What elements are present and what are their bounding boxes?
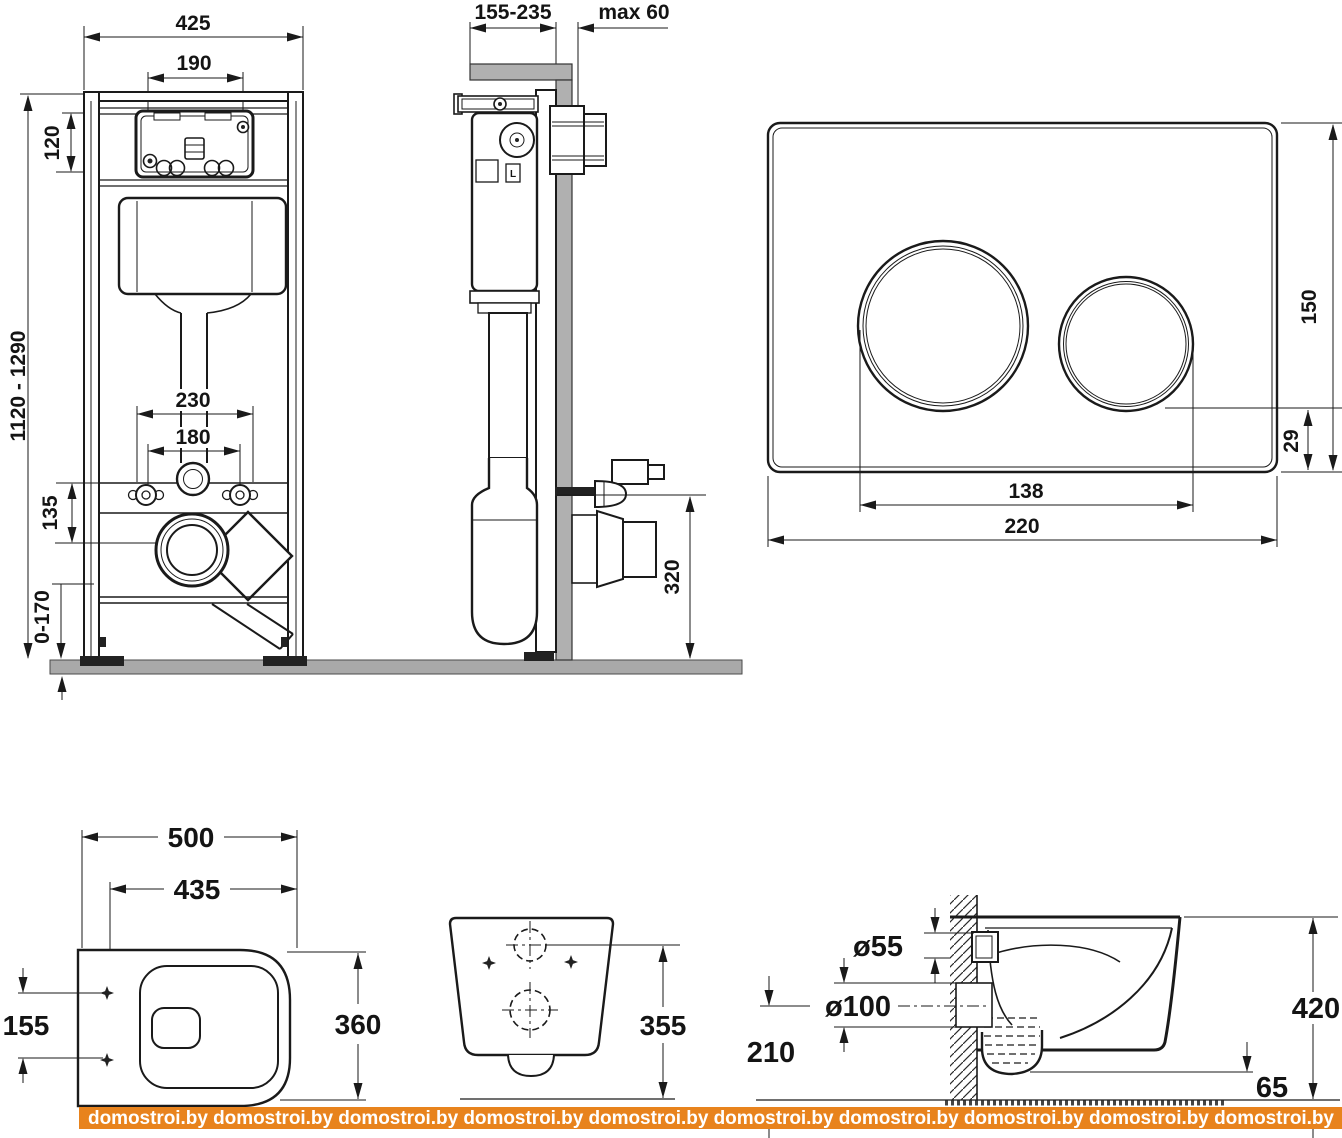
flush-plate-view: 150 29 138 220 [768, 123, 1342, 547]
bowl-outline-top [78, 950, 290, 1106]
frame-foot-left [80, 656, 124, 666]
dim-button-offset: 29 [1280, 429, 1303, 452]
dim-plate-cutout-width: 190 [176, 52, 211, 75]
dim-outlet-offset: 135 [39, 495, 62, 530]
flush-pipe-side [489, 313, 527, 458]
dim-plate-width: 220 [1004, 515, 1039, 538]
dim-mount-width: 435 [174, 874, 221, 905]
wall-top-shelf [470, 64, 572, 80]
dim-depth-range: 155-235 [474, 1, 551, 24]
mount-bolt-left [129, 485, 164, 505]
bowl-rear-view: 355 [450, 918, 686, 1099]
dim-frame-width: 425 [175, 12, 210, 35]
wall-bracket [550, 106, 584, 174]
bowl-right-edge [1154, 917, 1180, 1050]
frame-foot-side [524, 652, 554, 661]
frame-side-view: 155-235 max 60 L 320 [454, 1, 706, 661]
drain-trap [472, 458, 537, 644]
dim-bottom-gap: 65 [1256, 1072, 1288, 1104]
bowl-outline-rear [450, 918, 613, 1055]
outlet-duct [956, 983, 992, 1027]
dim-wall-max: max 60 [598, 1, 669, 24]
frame-foot-right [263, 656, 307, 666]
dim-rear-height: 355 [640, 1010, 687, 1041]
bowl-top-view: 500 435 155 360 [3, 822, 382, 1106]
dim-outlet-height: 320 [661, 559, 684, 594]
water-inlet-port [177, 463, 209, 495]
technical-drawing-canvas: 425 190 1120 - 1290 120 230 180 [0, 0, 1342, 1138]
dim-bowl-depth: 360 [335, 1009, 382, 1040]
dim-button-centers: 138 [1008, 480, 1043, 503]
inlet-connector [612, 460, 648, 484]
dim-total-height: 420 [1292, 993, 1340, 1025]
mount-bolt-right [223, 485, 258, 505]
dim-outlet-axis-height: 210 [747, 1037, 795, 1069]
dim-mount-span: 155 [3, 1010, 50, 1041]
dim-bowl-width: 500 [168, 822, 215, 853]
watermark-bar: domostroi.by domostroi.by domostroi.by d… [79, 1107, 1342, 1129]
outlet-bump [508, 1055, 554, 1076]
dim-bolt-span-inner: 180 [175, 426, 210, 449]
dim-inlet-diameter: ø55 [853, 931, 903, 963]
installation-diagram: 425 190 1120 - 1290 120 230 180 [0, 0, 1342, 1138]
bowl-side-section: ø55 ø100 210 420 65 [747, 895, 1340, 1138]
frame-front-view: 425 190 1120 - 1290 120 230 180 [7, 12, 742, 700]
cistern-mark: L [510, 169, 516, 180]
watermark-text: domostroi.by domostroi.by domostroi.by d… [88, 1108, 1334, 1129]
dim-bolt-span: 230 [175, 389, 210, 412]
dim-foot-adjust: 0-170 [31, 590, 54, 644]
dim-plate-height: 150 [1298, 289, 1321, 324]
concealed-cistern [119, 198, 286, 294]
dim-service-box-height: 120 [41, 125, 64, 160]
flush-valve-fitting [185, 138, 204, 159]
dim-frame-height-range: 1120 - 1290 [7, 331, 30, 442]
dim-outlet-diameter: ø100 [825, 991, 891, 1023]
frame-top-bar [84, 92, 303, 101]
floor-bar [50, 660, 742, 674]
drain-connector-cone [597, 511, 623, 587]
cistern-side [472, 113, 537, 291]
